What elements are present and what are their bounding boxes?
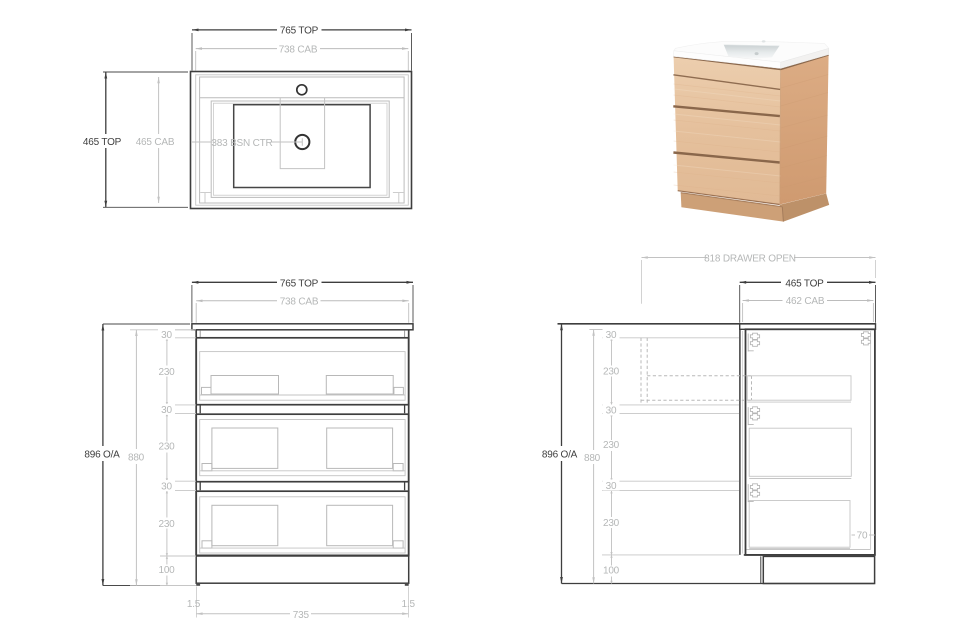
svg-text:30: 30	[606, 406, 617, 417]
svg-text:896 O/A: 896 O/A	[84, 450, 120, 461]
svg-text:230: 230	[603, 367, 620, 378]
svg-text:383 BSN CTR: 383 BSN CTR	[211, 138, 272, 149]
svg-text:465 TOP: 465 TOP	[785, 278, 824, 289]
svg-text:230: 230	[603, 518, 620, 529]
svg-text:896 O/A: 896 O/A	[542, 450, 578, 461]
svg-text:230: 230	[158, 442, 175, 453]
svg-text:30: 30	[161, 405, 172, 416]
svg-text:765 TOP: 765 TOP	[280, 278, 319, 289]
svg-text:70: 70	[857, 531, 868, 542]
svg-text:462 CAB: 462 CAB	[786, 296, 825, 307]
svg-text:818 DRAWER OPEN: 818 DRAWER OPEN	[704, 253, 796, 264]
svg-text:230: 230	[158, 367, 175, 378]
svg-text:30: 30	[606, 330, 617, 341]
svg-text:30: 30	[161, 330, 172, 341]
svg-text:230: 230	[603, 440, 620, 451]
svg-text:100: 100	[603, 565, 620, 576]
svg-text:735: 735	[293, 610, 310, 621]
svg-text:765 TOP: 765 TOP	[280, 26, 319, 37]
svg-text:1.5: 1.5	[187, 599, 201, 610]
svg-text:465 CAB: 465 CAB	[136, 137, 175, 148]
svg-text:30: 30	[161, 481, 172, 492]
svg-text:30: 30	[606, 481, 617, 492]
svg-text:738 CAB: 738 CAB	[280, 297, 319, 308]
svg-text:1.5: 1.5	[402, 599, 416, 610]
svg-text:465 TOP: 465 TOP	[83, 137, 122, 148]
svg-text:230: 230	[158, 519, 175, 530]
svg-text:100: 100	[158, 565, 175, 576]
svg-text:880: 880	[584, 453, 601, 464]
svg-text:880: 880	[128, 452, 145, 463]
svg-text:738 CAB: 738 CAB	[279, 44, 318, 55]
